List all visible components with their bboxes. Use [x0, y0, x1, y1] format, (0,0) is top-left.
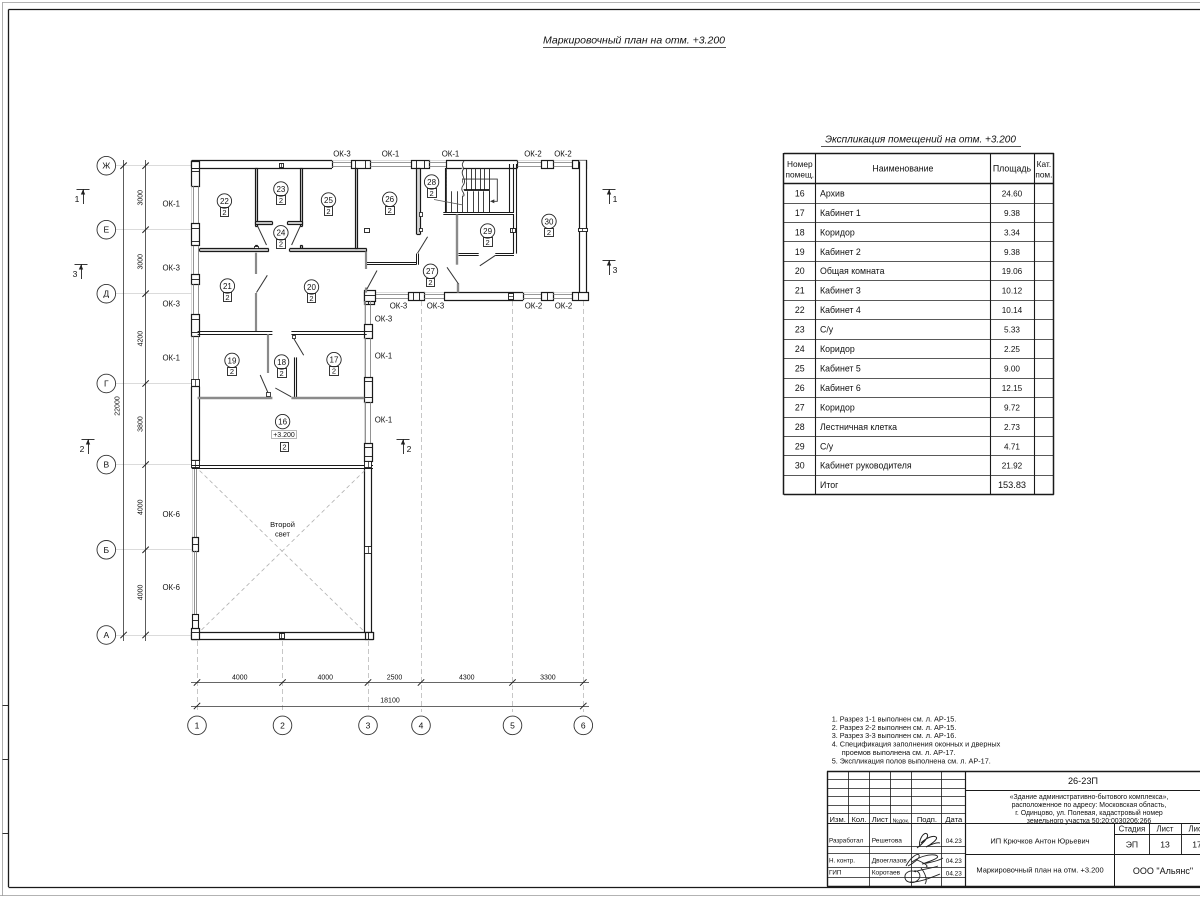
svg-text:ОК-2: ОК-2	[524, 150, 542, 159]
svg-text:Стадия: Стадия	[1119, 825, 1146, 834]
svg-text:2.25: 2.25	[1004, 345, 1020, 354]
svg-text:Площадь: Площадь	[993, 164, 1032, 174]
svg-text:Кабинет 1: Кабинет 1	[820, 208, 861, 218]
svg-text:Маркировочный план на отм. +3.: Маркировочный план на отм. +3.200	[976, 866, 1103, 875]
svg-text:2: 2	[428, 278, 432, 287]
svg-text:Б: Б	[104, 545, 110, 555]
svg-text:Кабинет 2: Кабинет 2	[820, 247, 861, 257]
svg-text:5.33: 5.33	[1004, 326, 1020, 335]
svg-text:4200: 4200	[138, 331, 145, 347]
svg-text:27: 27	[795, 402, 805, 412]
svg-text:2.73: 2.73	[1004, 423, 1020, 432]
svg-text:9.72: 9.72	[1004, 403, 1020, 412]
svg-text:4: 4	[419, 720, 424, 730]
svg-text:Кабинет 3: Кабинет 3	[820, 286, 861, 296]
svg-text:20: 20	[307, 283, 316, 292]
svg-text:3800: 3800	[138, 416, 145, 432]
svg-text:С/у: С/у	[820, 441, 834, 451]
svg-text:2: 2	[430, 189, 434, 198]
svg-text:ОК-3: ОК-3	[162, 300, 180, 309]
svg-text:5. Экспликация полов выполнена: 5. Экспликация полов выполнена см. л. АР…	[832, 756, 991, 765]
svg-text:ИП Крючков Антон Юрьевич: ИП Крючков Антон Юрьевич	[990, 836, 1089, 845]
svg-text:Кабинет 5: Кабинет 5	[820, 363, 861, 373]
svg-text:Е: Е	[103, 225, 109, 235]
svg-text:19: 19	[795, 247, 805, 257]
svg-text:помещ.: помещ.	[786, 169, 815, 179]
svg-text:3: 3	[366, 720, 371, 730]
svg-text:21: 21	[795, 286, 805, 296]
svg-text:16: 16	[795, 188, 805, 198]
svg-text:Коридор: Коридор	[820, 344, 855, 354]
svg-text:Разработал: Разработал	[829, 837, 864, 845]
svg-text:3: 3	[613, 265, 618, 275]
svg-text:ОК-3: ОК-3	[375, 315, 393, 324]
svg-text:пом.: пом.	[1035, 169, 1052, 179]
svg-text:Кабинет 4: Кабинет 4	[820, 305, 861, 315]
svg-text:Изм.: Изм.	[830, 815, 846, 824]
svg-text:2: 2	[279, 196, 283, 205]
svg-text:2: 2	[332, 366, 336, 375]
svg-text:Маркировочный план на отм. +3.: Маркировочный план на отм. +3.200	[543, 35, 725, 47]
svg-text:10.14: 10.14	[1002, 306, 1023, 315]
svg-text:2: 2	[547, 228, 551, 237]
svg-text:22: 22	[220, 197, 229, 206]
svg-text:Кол.: Кол.	[851, 815, 866, 824]
svg-text:Лист: Лист	[1189, 825, 1200, 834]
svg-text:2: 2	[279, 240, 283, 249]
svg-text:2: 2	[282, 443, 286, 452]
svg-text:Кабинет 6: Кабинет 6	[820, 383, 861, 393]
svg-text:свет: свет	[275, 530, 291, 539]
svg-text:3.34: 3.34	[1004, 228, 1020, 237]
svg-text:В: В	[103, 460, 109, 470]
svg-text:26-23П: 26-23П	[1068, 776, 1098, 786]
svg-text:28: 28	[427, 178, 436, 187]
svg-text:ОК-1: ОК-1	[382, 150, 400, 159]
svg-text:Лестничная клетка: Лестничная клетка	[820, 422, 897, 432]
svg-text:27: 27	[426, 267, 435, 276]
svg-text:1: 1	[75, 194, 80, 204]
svg-text:17: 17	[795, 208, 805, 218]
svg-text:ООО "Альянс": ООО "Альянс"	[1133, 866, 1193, 876]
svg-text:3000: 3000	[138, 254, 145, 270]
svg-text:21: 21	[223, 282, 232, 291]
svg-text:28: 28	[795, 422, 805, 432]
svg-text:26: 26	[385, 195, 394, 204]
svg-text:12.15: 12.15	[1002, 384, 1023, 393]
svg-text:2: 2	[486, 238, 490, 247]
svg-text:ОК-1: ОК-1	[162, 354, 180, 363]
svg-text:ГИП: ГИП	[829, 870, 842, 877]
svg-text:ОК-1: ОК-1	[375, 416, 393, 425]
svg-text:№док.: №док.	[893, 818, 910, 824]
svg-text:А: А	[103, 630, 109, 640]
svg-text:2: 2	[222, 208, 226, 217]
svg-text:6: 6	[581, 720, 586, 730]
svg-text:Г: Г	[104, 379, 109, 389]
svg-text:Коротаев: Коротаев	[872, 870, 901, 877]
svg-text:30: 30	[545, 217, 554, 226]
svg-text:19.06: 19.06	[1002, 267, 1023, 276]
svg-text:Н. контр.: Н. контр.	[829, 858, 855, 865]
svg-text:Кабинет руководителя: Кабинет руководителя	[820, 461, 912, 471]
svg-text:23: 23	[276, 185, 285, 194]
svg-text:2: 2	[230, 367, 234, 376]
svg-text:Итог: Итог	[820, 480, 838, 490]
svg-text:19: 19	[228, 356, 237, 365]
svg-text:4300: 4300	[459, 675, 475, 682]
svg-text:3: 3	[73, 269, 78, 279]
svg-text:24: 24	[276, 229, 285, 238]
svg-text:25: 25	[324, 196, 333, 205]
svg-text:Кат.: Кат.	[1037, 159, 1051, 169]
svg-text:ОК-1: ОК-1	[162, 200, 180, 209]
svg-text:22000: 22000	[115, 396, 122, 416]
svg-text:2: 2	[280, 369, 284, 378]
svg-text:5: 5	[510, 720, 515, 730]
svg-text:2: 2	[80, 444, 85, 454]
svg-text:16: 16	[278, 418, 287, 427]
svg-text:Ж: Ж	[102, 161, 110, 171]
svg-text:ОК-1: ОК-1	[442, 150, 460, 159]
svg-text:29: 29	[483, 227, 492, 236]
svg-text:3000: 3000	[138, 190, 145, 206]
svg-text:9.00: 9.00	[1004, 364, 1020, 373]
svg-text:17: 17	[330, 356, 339, 365]
svg-text:Наименование: Наименование	[872, 164, 933, 174]
svg-text:ОК-1: ОК-1	[375, 352, 393, 361]
svg-text:Общая комната: Общая комната	[820, 266, 885, 276]
svg-text:29: 29	[795, 441, 805, 451]
svg-text:153.83: 153.83	[998, 480, 1026, 490]
svg-text:«Здание административно-бытово: «Здание административно-бытового комплек…	[1010, 793, 1169, 801]
svg-text:20: 20	[795, 266, 805, 276]
svg-text:ОК-2: ОК-2	[525, 302, 543, 311]
svg-text:04.23: 04.23	[946, 838, 962, 845]
svg-text:4000: 4000	[138, 499, 145, 515]
svg-text:2: 2	[388, 206, 392, 215]
svg-text:Коридор: Коридор	[820, 402, 855, 412]
svg-text:30: 30	[795, 461, 805, 471]
svg-text:ЭП: ЭП	[1126, 840, 1138, 850]
svg-text:25: 25	[795, 363, 805, 373]
svg-text:1: 1	[195, 720, 200, 730]
svg-text:2: 2	[309, 294, 313, 303]
svg-text:ОК-6: ОК-6	[162, 583, 180, 592]
svg-text:17: 17	[1192, 840, 1200, 850]
svg-text:Лист: Лист	[1157, 825, 1174, 834]
svg-text:9.38: 9.38	[1004, 209, 1020, 218]
svg-text:10.12: 10.12	[1002, 287, 1023, 296]
svg-text:4000: 4000	[138, 585, 145, 601]
svg-text:ОК-3: ОК-3	[333, 150, 351, 159]
svg-text:18100: 18100	[380, 698, 400, 705]
svg-text:г. Одинцово, ул. Полевая, када: г. Одинцово, ул. Полевая, кадастровый но…	[1015, 809, 1163, 817]
svg-text:Экспликация помещений на отм.: Экспликация помещений на отм. +3.200	[825, 135, 1016, 146]
svg-text:04.23: 04.23	[946, 858, 962, 865]
svg-text:С/у: С/у	[820, 325, 834, 335]
svg-text:ОК-3: ОК-3	[390, 302, 408, 311]
svg-text:26: 26	[795, 383, 805, 393]
svg-text:3300: 3300	[540, 675, 556, 682]
svg-text:ОК-2: ОК-2	[555, 302, 573, 311]
svg-text:9.38: 9.38	[1004, 248, 1020, 257]
svg-text:Архив: Архив	[820, 188, 845, 198]
svg-text:13: 13	[1160, 840, 1170, 850]
svg-text:23: 23	[795, 325, 805, 335]
svg-text:04.23: 04.23	[946, 871, 962, 878]
svg-text:ОК-3: ОК-3	[427, 302, 445, 311]
svg-text:Д: Д	[103, 289, 109, 299]
svg-text:18: 18	[277, 358, 286, 367]
svg-text:4000: 4000	[317, 675, 333, 682]
svg-text:2: 2	[407, 444, 412, 454]
svg-text:Коридор: Коридор	[820, 227, 855, 237]
svg-text:22: 22	[795, 305, 805, 315]
svg-text:4000: 4000	[232, 675, 248, 682]
svg-text:Двоеглазов: Двоеглазов	[872, 858, 908, 865]
svg-text:ОК-3: ОК-3	[162, 264, 180, 273]
svg-text:Лист: Лист	[872, 815, 889, 824]
svg-text:+3.200: +3.200	[273, 432, 295, 439]
svg-text:Дата: Дата	[945, 815, 963, 824]
svg-text:2500: 2500	[387, 675, 403, 682]
svg-text:4.71: 4.71	[1004, 442, 1020, 451]
svg-text:Подп.: Подп.	[917, 815, 937, 824]
svg-text:расположенное по адресу: Моско: расположенное по адресу: Московская обла…	[1012, 801, 1167, 809]
svg-text:18: 18	[795, 227, 805, 237]
svg-text:1: 1	[613, 194, 618, 204]
svg-text:Номер: Номер	[787, 159, 813, 169]
svg-text:2: 2	[326, 207, 330, 216]
svg-text:24.60: 24.60	[1002, 189, 1023, 198]
svg-text:Решетова: Решетова	[872, 838, 903, 845]
svg-text:2: 2	[225, 293, 229, 302]
svg-text:2: 2	[280, 720, 285, 730]
svg-text:ОК-2: ОК-2	[554, 150, 572, 159]
svg-text:Второй: Второй	[270, 520, 295, 529]
svg-text:24: 24	[795, 344, 805, 354]
svg-text:21.92: 21.92	[1002, 462, 1023, 471]
svg-text:ОК-6: ОК-6	[162, 510, 180, 519]
